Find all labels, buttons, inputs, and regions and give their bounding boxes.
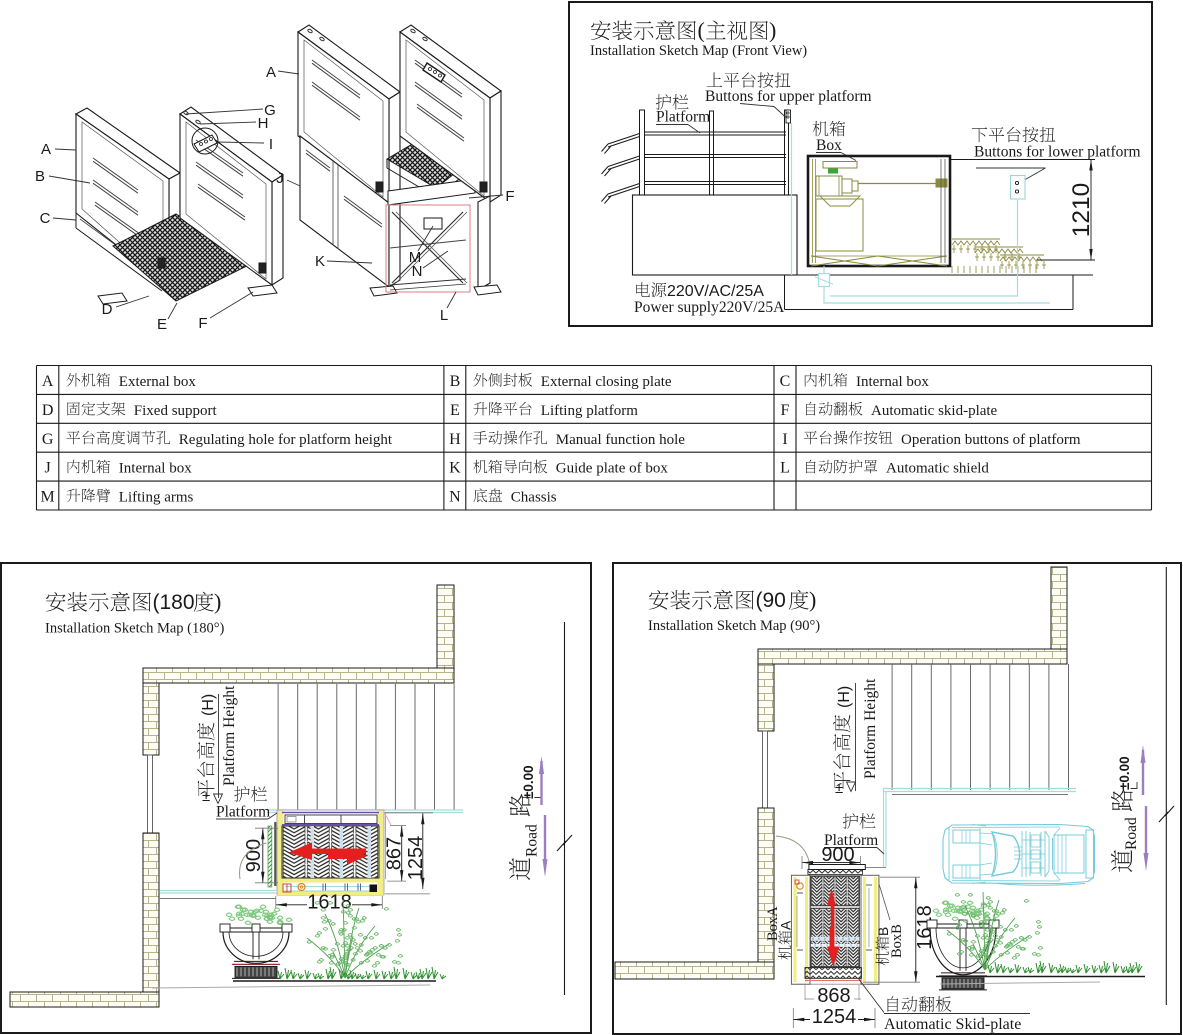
svg-text:Platform: Platform <box>656 109 710 126</box>
svg-text:D: D <box>102 301 113 318</box>
svg-text:Installation Sketch Map (180°): Installation Sketch Map (180°) <box>45 621 225 637</box>
svg-text:Fixed support: Fixed support <box>134 403 218 419</box>
svg-text:(: ( <box>698 18 705 43</box>
svg-text:220V/AC/25A: 220V/AC/25A <box>667 283 764 300</box>
svg-text:1618: 1618 <box>307 892 352 914</box>
svg-text:Automatic Skid-plate: Automatic Skid-plate <box>884 1016 1021 1033</box>
svg-text:Manual function hole: Manual function hole <box>556 432 685 448</box>
svg-text:J: J <box>44 460 50 477</box>
svg-text:N: N <box>412 263 423 280</box>
svg-text:900: 900 <box>243 839 265 872</box>
svg-text:Box: Box <box>816 137 842 154</box>
svg-text:(H): (H) <box>836 686 853 708</box>
svg-text:A: A <box>42 373 54 390</box>
svg-text:Buttons for lower platform: Buttons for lower platform <box>974 144 1141 161</box>
svg-text:A: A <box>779 920 794 930</box>
svg-text:I: I <box>269 136 273 153</box>
svg-text:Road: Road <box>1123 817 1140 850</box>
svg-text:Automatic skid-plate: Automatic skid-plate <box>871 403 998 419</box>
svg-text:Lifting platform: Lifting platform <box>541 403 638 419</box>
svg-text:1254: 1254 <box>405 836 427 881</box>
svg-text:A: A <box>41 141 51 158</box>
svg-text:867: 867 <box>384 837 406 870</box>
svg-text:Platform Height: Platform Height <box>221 685 238 786</box>
svg-text:868: 868 <box>817 985 850 1007</box>
svg-text:Lifting arms: Lifting arms <box>119 490 194 506</box>
svg-text:(90: (90 <box>756 589 786 612</box>
svg-text:1254: 1254 <box>812 1006 857 1028</box>
svg-text:(180: (180 <box>153 591 195 614</box>
svg-text:B: B <box>35 168 45 185</box>
svg-text:Power supply220V/25A: Power supply220V/25A <box>634 299 785 316</box>
svg-text:F: F <box>505 188 514 205</box>
svg-text:Regulating hole for platform h: Regulating hole for platform height <box>179 432 393 448</box>
svg-text:B: B <box>450 373 461 390</box>
svg-text:±0.00: ±0.00 <box>1117 756 1132 790</box>
svg-text:): ) <box>809 587 816 612</box>
svg-text:M: M <box>40 489 54 506</box>
svg-text:Installation Sketch Map (90°): Installation Sketch Map (90°) <box>648 618 820 634</box>
svg-text:G: G <box>42 431 54 448</box>
svg-text:E: E <box>157 316 167 333</box>
svg-text:Buttons for upper platform: Buttons for upper platform <box>705 88 872 105</box>
svg-text:): ) <box>214 589 221 614</box>
svg-text:Platform: Platform <box>216 804 270 821</box>
svg-text:±: ± <box>835 780 843 797</box>
svg-text:K: K <box>449 460 461 477</box>
svg-text:I: I <box>782 431 787 448</box>
svg-text:BoxB: BoxB <box>889 924 905 958</box>
svg-text:±: ± <box>202 788 210 805</box>
svg-text:J: J <box>276 170 284 187</box>
svg-text:Chassis: Chassis <box>511 490 557 506</box>
svg-text:Road: Road <box>524 824 541 857</box>
svg-text:Installation Sketch Map (Front: Installation Sketch Map (Front View) <box>590 43 807 59</box>
svg-text:K: K <box>315 253 325 270</box>
svg-text:(H): (H) <box>200 694 217 716</box>
svg-text:External box: External box <box>119 374 197 390</box>
svg-text:Guide plate of box: Guide plate of box <box>556 461 669 477</box>
svg-text:±0.00: ±0.00 <box>521 765 536 799</box>
svg-text:L: L <box>780 460 790 477</box>
svg-text:Platform Height: Platform Height <box>862 678 879 779</box>
svg-text:C: C <box>780 373 791 390</box>
svg-text:Internal box: Internal box <box>119 461 192 477</box>
svg-text:F: F <box>781 402 790 419</box>
svg-text:L: L <box>440 307 448 324</box>
svg-text:H: H <box>258 115 269 132</box>
svg-text:Operation buttons of platform: Operation buttons of platform <box>901 432 1081 448</box>
svg-text:D: D <box>42 402 54 419</box>
svg-text:A: A <box>266 64 276 81</box>
svg-text:N: N <box>449 489 461 506</box>
svg-text:C: C <box>40 210 51 227</box>
svg-text:Automatic shield: Automatic shield <box>886 461 989 477</box>
svg-text:E: E <box>450 402 460 419</box>
svg-text:External closing plate: External closing plate <box>541 374 672 390</box>
svg-text:1210: 1210 <box>1068 183 1095 238</box>
svg-text:Internal box: Internal box <box>856 374 929 390</box>
svg-text:): ) <box>769 18 776 43</box>
svg-text:F: F <box>198 315 207 332</box>
svg-text:H: H <box>449 431 461 448</box>
